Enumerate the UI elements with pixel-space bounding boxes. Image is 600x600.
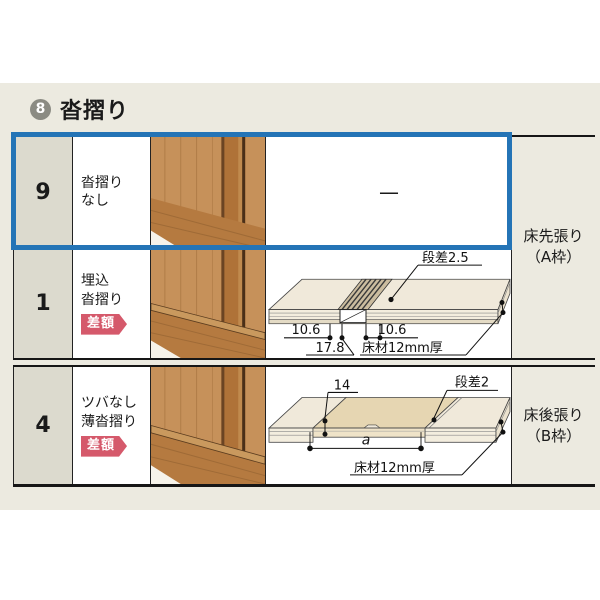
- row1-name-line1: 埋込: [81, 272, 150, 290]
- section-divider-line-lower: [13, 365, 595, 367]
- row-umekomi-kutsuzuri[interactable]: 1 埋込 沓摺り 差額: [13, 249, 512, 358]
- thin-sill-cross-section: 14 段差2 a 床材12mm厚: [266, 367, 512, 484]
- row9-number: 9: [14, 135, 73, 249]
- side-label-b-line1: 床後張り: [523, 405, 583, 425]
- side-label-a-frame: 床先張り （A枠）: [511, 135, 595, 358]
- section-divider-line-upper: [13, 358, 595, 360]
- label-step: 段差2.5: [422, 251, 469, 266]
- row4-photo: [151, 367, 266, 484]
- label-span: a: [362, 432, 371, 448]
- floor-photo-no-sill: [151, 135, 265, 249]
- catalog-page: 8 沓摺り 9 沓摺り なし: [0, 0, 600, 600]
- row1-diagram: 段差2.5 10.6 10.6 17.8 床材12mm厚: [266, 249, 512, 358]
- side-label-b-frame: 床後張り （B枠）: [511, 367, 595, 484]
- row4-diagram: 14 段差2 a 床材12mm厚: [266, 367, 512, 484]
- section-header: 8 沓摺り: [30, 95, 129, 123]
- row9-diagram-placeholder: —: [266, 135, 512, 249]
- row4-name-line1: ツバなし: [81, 394, 150, 412]
- side-label-a-line1: 床先張り: [523, 226, 583, 246]
- label-dim-width: 14: [334, 378, 351, 393]
- label-dim-total: 17.8: [316, 341, 345, 356]
- label-step: 段差2: [455, 374, 489, 390]
- table-top-border: [13, 135, 595, 137]
- row9-name-line1: 沓摺り: [81, 174, 150, 192]
- side-label-b-line2: （B枠）: [526, 426, 581, 446]
- row4-price-difference-badge: 差額: [81, 436, 127, 457]
- table-bottom-border: [13, 484, 595, 487]
- label-dim-right: 10.6: [378, 323, 407, 338]
- row1-photo: [151, 249, 266, 358]
- row1-name-line2: 沓摺り: [81, 291, 150, 309]
- section-number-badge: 8: [30, 99, 51, 120]
- side-label-a-line2: （A枠）: [526, 247, 581, 267]
- row9-name: 沓摺り なし: [73, 135, 151, 249]
- floor-photo-embedded-sill: [151, 249, 265, 358]
- row4-number: 4: [14, 367, 73, 484]
- row-tsubanashi-usu-kutsuzuri[interactable]: 4 ツバなし 薄沓摺り 差額: [13, 367, 512, 484]
- row9-photo: [151, 135, 266, 249]
- dash: —: [379, 180, 399, 204]
- label-material: 床材12mm厚: [362, 341, 443, 356]
- row9-name-line2: なし: [81, 192, 150, 210]
- row4-name: ツバなし 薄沓摺り 差額: [73, 367, 151, 484]
- floor-photo-thin-sill: [151, 367, 265, 484]
- row1-number: 1: [14, 249, 73, 358]
- row1-price-difference-badge: 差額: [81, 314, 127, 335]
- row1-name: 埋込 沓摺り 差額: [73, 249, 151, 358]
- row4-name-line2: 薄沓摺り: [81, 413, 150, 431]
- row-kutsuzuri-nashi[interactable]: 9 沓摺り なし —: [13, 135, 512, 249]
- label-dim-left: 10.6: [292, 323, 321, 338]
- section-title: 沓摺り: [60, 93, 129, 125]
- label-material: 床材12mm厚: [354, 460, 435, 476]
- embedded-sill-cross-section: 段差2.5 10.6 10.6 17.8 床材12mm厚: [266, 249, 512, 358]
